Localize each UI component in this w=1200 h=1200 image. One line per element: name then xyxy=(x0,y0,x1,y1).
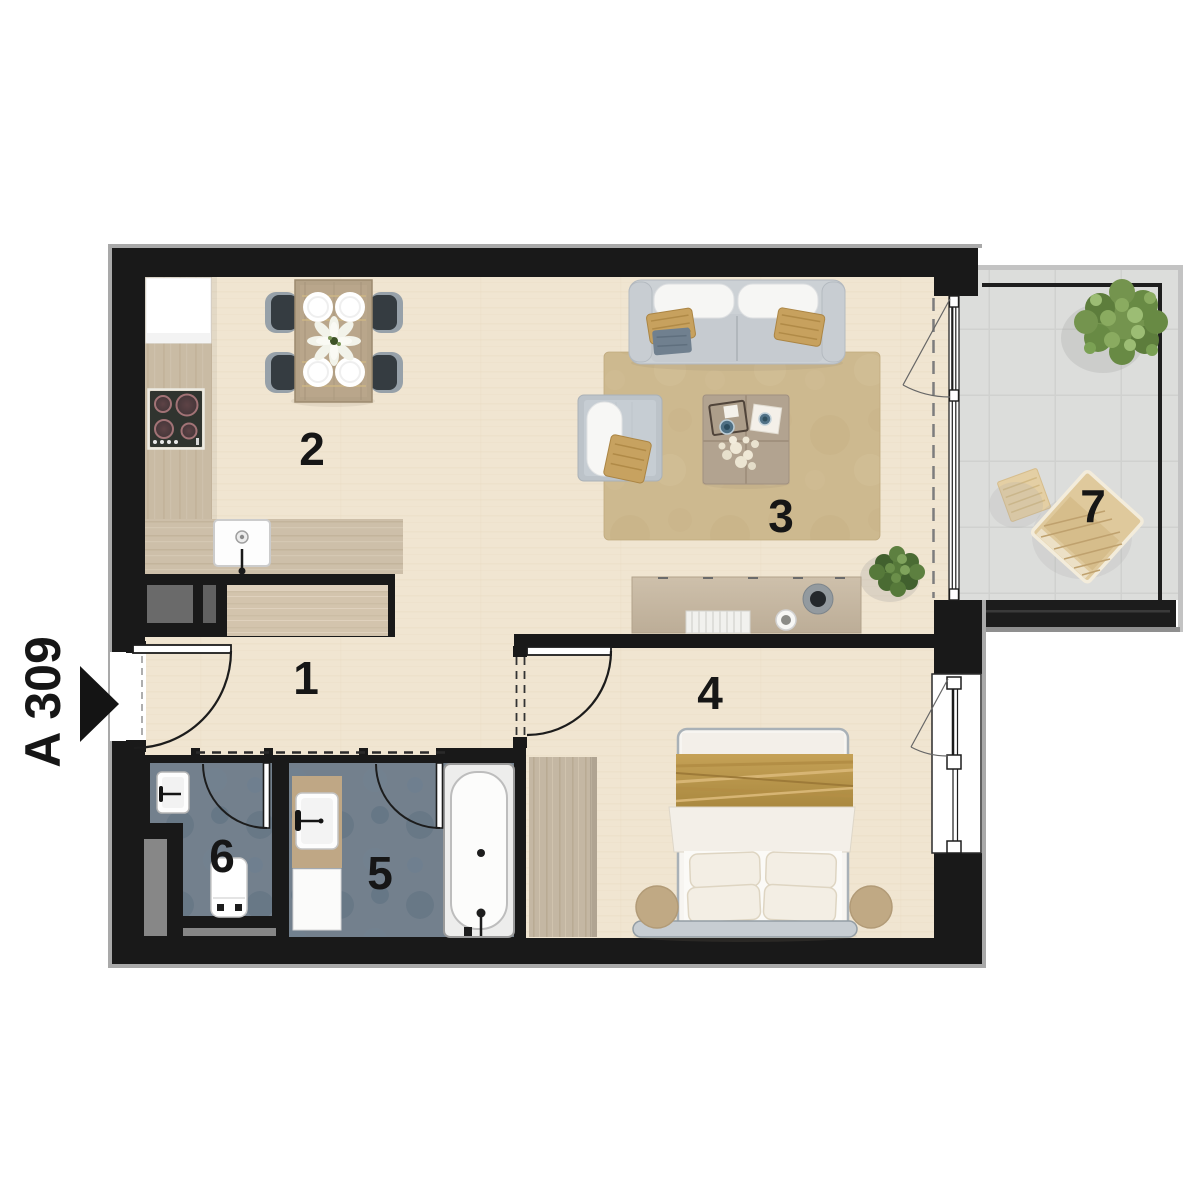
svg-text:5: 5 xyxy=(367,847,393,899)
svg-text:3: 3 xyxy=(768,490,794,542)
svg-text:A 309: A 309 xyxy=(15,636,71,768)
svg-text:1: 1 xyxy=(293,652,319,704)
svg-text:7: 7 xyxy=(1080,480,1106,532)
svg-text:4: 4 xyxy=(697,667,723,719)
svg-text:6: 6 xyxy=(209,830,235,882)
svg-text:2: 2 xyxy=(299,423,325,475)
